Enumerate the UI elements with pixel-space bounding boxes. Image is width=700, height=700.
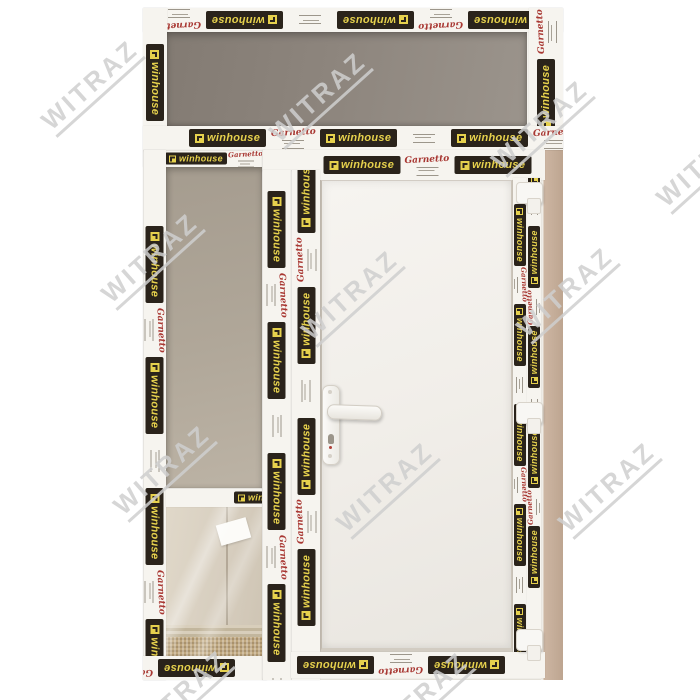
tape-winhouse-block: winhouse <box>337 11 414 29</box>
winhouse-logo-icon <box>272 197 281 206</box>
tape-brand-text: winhouse <box>271 209 283 262</box>
tape-winhouse-block: winhouse <box>297 656 374 674</box>
winhouse-logo-icon <box>272 459 281 468</box>
tape-fineprint-lines <box>430 10 452 19</box>
winhouse-logo-icon <box>490 661 499 670</box>
winhouse-logo-icon <box>329 161 338 170</box>
tape-winhouse-block: winhouse <box>268 584 286 661</box>
tape-fineprint-lines <box>144 581 153 603</box>
tape-gap <box>537 161 545 170</box>
tape-fineprint-lines <box>307 511 316 533</box>
winhouse-logo-icon <box>195 134 204 143</box>
tape-sub-brand-text: Garnetto <box>154 570 166 615</box>
winhouse-logo-icon <box>220 664 229 673</box>
tape-transom-bottom: winhouseGarnettowinhousewinhouseGarnetto… <box>143 126 563 150</box>
winhouse-logo-icon <box>301 218 310 227</box>
winhouse-logo-icon <box>531 277 538 284</box>
tape-gap <box>150 440 159 482</box>
tape-fineprint-lines <box>413 134 435 143</box>
tape-fineprint-lines <box>168 10 190 19</box>
winhouse-logo-icon <box>268 16 277 25</box>
tape-fineprint-lines <box>513 277 518 293</box>
winhouse-logo-icon <box>531 377 538 384</box>
tape-gap <box>517 370 524 400</box>
tape-brand-text: winhouse <box>529 430 539 474</box>
tape-fineprint-lines <box>299 16 321 25</box>
tape-gap: Garnetto <box>144 309 165 351</box>
tape-winhouse-block: winhouse <box>451 129 528 147</box>
tape-gap: Garnetto <box>144 571 165 613</box>
tape-door-bottom: winhouseGarnettowinhousewinhouse <box>291 652 545 678</box>
tape-gap: Garnetto <box>266 274 287 316</box>
winhouse-logo-icon <box>531 577 538 584</box>
tape-sidelight-bottom: winhouseGarnettowinhouse <box>143 656 267 680</box>
witraz-watermark: WITRAZ <box>650 111 700 214</box>
winhouse-logo-icon <box>272 590 281 599</box>
tape-gap <box>272 405 281 447</box>
tape-brand-text: winhouse <box>300 555 312 608</box>
tape-fineprint-lines <box>307 249 316 271</box>
tape-brand-text: winhouse <box>341 159 394 171</box>
tape-fineprint-lines <box>390 655 412 664</box>
tape-brand-text: winhouse <box>515 218 525 262</box>
tape-winhouse-block: winhouse <box>189 129 266 147</box>
tape-gap: Garnetto <box>527 292 541 322</box>
tape-winhouse-block: winhouse <box>268 453 286 530</box>
tape-sub-brand-text: Garnetto <box>519 267 527 302</box>
tape-brand-text: winhouse <box>300 424 312 477</box>
winhouse-logo-icon <box>326 134 335 143</box>
tape-fineprint-lines <box>517 577 524 593</box>
tape-winhouse-block: winhouse <box>514 304 526 366</box>
tape-fineprint-lines <box>266 284 275 306</box>
tape-brand-text: winhouse <box>529 530 539 574</box>
tape-brand-text: winhouse <box>248 493 262 503</box>
tape-brand-text: winhouse <box>149 375 161 428</box>
tape-fineprint-lines <box>416 167 438 176</box>
tape-sub-brand-text: Garnetto <box>143 667 154 679</box>
tape-winhouse-block: winhouse <box>297 170 315 233</box>
tape-winhouse-block: winhouse <box>528 526 540 588</box>
tape-fineprint-lines <box>536 499 541 515</box>
tape-brand-text: winhouse <box>472 159 525 171</box>
tape-winhouse-block: winhouse <box>428 656 505 674</box>
door-handle-lever <box>327 404 382 421</box>
tape-gap: Garnetto <box>513 470 527 500</box>
tape-brand-text: winhouse <box>540 65 552 118</box>
tape-brand-text: winhouse <box>469 132 522 144</box>
winhouse-logo-icon <box>517 508 524 515</box>
door-keyhole <box>328 434 334 444</box>
tape-winhouse-block: winhouse <box>514 504 526 566</box>
tape-gap <box>517 570 524 600</box>
winhouse-logo-icon <box>272 328 281 337</box>
tape-fineprint-lines <box>150 450 159 472</box>
tape-fineprint-lines <box>536 299 541 315</box>
winhouse-logo-icon <box>517 308 524 315</box>
sidelight-frosted-glass <box>166 167 262 488</box>
tape-brand-text: winhouse <box>207 132 260 144</box>
winhouse-logo-icon <box>457 134 466 143</box>
tape-gap: Garnetto <box>513 270 527 300</box>
tape-sub-brand-text: Garnetto <box>404 153 449 165</box>
tape-gap: Garnetto <box>272 128 314 149</box>
tape-winhouse-block: winhouse <box>454 156 531 174</box>
glass-reflection <box>166 507 262 656</box>
product-photo: winhouseGarnettowinhousewinhouseGarnetto… <box>0 0 700 700</box>
tape-winhouse-block: winhouse <box>158 659 235 677</box>
tape-sub-brand-text: Garnetto <box>527 489 535 524</box>
tape-sub-brand-text: Garnetto <box>276 535 288 580</box>
tape-brand-text: winhouse <box>529 330 539 374</box>
tape-winhouse-block: winhouse <box>146 357 164 434</box>
winhouse-logo-icon <box>150 363 159 372</box>
tape-brand-text: winhouse <box>515 318 525 362</box>
tape-brand-text: winhouse <box>271 602 283 655</box>
tape-winhouse-block: winhouse <box>165 153 227 165</box>
tape-mullion-strip-2: winhouseGarnettowinhousewinhouseGarnetto… <box>291 170 320 680</box>
winhouse-logo-icon <box>359 661 368 670</box>
tape-brand-text: winhouse <box>303 659 356 671</box>
tape-winhouse-block: winhouse <box>146 44 164 121</box>
tape-gap: Garnetto <box>536 11 557 53</box>
tape-brand-text: winhouse <box>529 230 539 274</box>
tape-transom-top: winhouseGarnettowinhousewinhouseGarnetto… <box>143 8 563 32</box>
winhouse-logo-icon <box>517 608 524 615</box>
tape-gap: Garnetto <box>231 150 261 167</box>
tape-mullion-strip-1: winhouseGarnettowinhousewinhouseGarnetto… <box>262 170 291 680</box>
tape-gap <box>272 668 281 681</box>
tape-sub-brand-text: Garnetto <box>534 9 546 54</box>
tape-sub-brand-text: Garnetto <box>154 307 166 352</box>
winhouse-logo-icon <box>301 480 310 489</box>
tape-sub-brand-text: Garnetto <box>294 237 306 282</box>
tape-winhouse-block: winhouse <box>323 156 400 174</box>
door-handle-backplate <box>322 385 340 465</box>
tape-gap: Garnetto <box>295 501 316 543</box>
winhouse-logo-icon <box>150 494 159 503</box>
tape-fineprint-lines <box>517 377 524 393</box>
tape-winhouse-block: winhouse <box>514 204 526 266</box>
witraz-watermark: WITRAZ <box>35 34 144 137</box>
tape-brand-text: winhouse <box>179 154 223 164</box>
tape-gap: Garnetto <box>406 155 448 176</box>
tape-brand-text: winhouse <box>271 471 283 524</box>
tape-winhouse-block: winhouse <box>268 191 286 268</box>
tape-brand-text: winhouse <box>300 293 312 346</box>
tape-sub-brand-text: Garnetto <box>270 126 315 138</box>
tape-sub-brand-text: Garnetto <box>533 126 563 138</box>
frame-side-edge <box>541 150 563 680</box>
tape-brand-text: winhouse <box>164 662 217 674</box>
tape-sub-brand-text: Garnetto <box>228 150 263 159</box>
tape-brand-text: winhouse <box>515 518 525 562</box>
winhouse-logo-icon <box>238 494 245 501</box>
tape-brand-text: winhouse <box>515 418 525 462</box>
tape-left-jamb: winhouseGarnettowinhousewinhouseGarnetto… <box>143 150 166 680</box>
door-hinge-bottom <box>516 629 543 651</box>
tape-winhouse-block: winhouse <box>146 226 164 303</box>
tape-winhouse-block: winhouse <box>297 287 315 364</box>
tape-brand-text: winhouse <box>271 340 283 393</box>
tape-winhouse-block: winhouse <box>528 226 540 288</box>
tape-fineprint-lines <box>301 380 310 402</box>
winhouse-logo-icon <box>517 208 524 215</box>
tape-winhouse-block: winhouse <box>297 549 315 626</box>
tape-sub-brand-text: Garnetto <box>294 499 306 544</box>
tape-sub-brand-text: Garnetto <box>519 467 527 502</box>
winhouse-logo-icon <box>399 16 408 25</box>
sidelight-clear-glass <box>166 507 262 656</box>
tape-fineprint-lines <box>272 415 281 437</box>
winhouse-logo-icon <box>460 161 469 170</box>
transom-window-glass <box>166 32 527 126</box>
tape-sub-brand-text: Garnetto <box>418 19 463 31</box>
tape-winhouse-block: winhouse <box>537 59 555 136</box>
tape-fineprint-lines <box>272 678 281 681</box>
tape-winhouse-block: winhouse <box>320 129 397 147</box>
tape-fineprint-lines <box>266 546 275 568</box>
tape-brand-text: winhouse <box>343 14 396 26</box>
tape-sub-brand-text: Garnetto <box>378 664 423 676</box>
tape-fineprint-lines <box>144 319 153 341</box>
tape-gap: Garnetto <box>380 655 422 676</box>
tape-winhouse-block: winhouse <box>528 326 540 388</box>
tape-gap: Garnetto <box>527 492 541 522</box>
tape-brand-text: winhouse <box>300 170 312 215</box>
tape-fineprint-lines <box>282 140 304 149</box>
tape-fineprint-lines <box>544 140 563 149</box>
tape-sub-brand-text: Garnetto <box>276 272 288 317</box>
door-hinge-top <box>516 182 543 204</box>
tape-gap <box>301 370 310 412</box>
tape-gap: Garnetto <box>420 10 462 31</box>
winhouse-logo-icon <box>301 349 310 358</box>
tape-brand-text: winhouse <box>338 132 391 144</box>
tape-brand-text: winhouse <box>149 62 161 115</box>
tape-winhouse-block: winhouse <box>297 418 315 495</box>
door-hinge-middle <box>516 402 543 424</box>
tape-gap: Garnetto <box>295 239 316 281</box>
winhouse-logo-icon <box>150 625 159 634</box>
tape-fineprint-lines <box>238 161 254 168</box>
tape-brand-text: winhouse <box>149 506 161 559</box>
tape-gap <box>403 134 445 143</box>
tape-winhouse-block: winhouse <box>268 322 286 399</box>
witraz-watermark: WITRAZ <box>552 436 661 539</box>
tape-winhouse-block: winhouse <box>206 11 283 29</box>
tape-brand-text: winhouse <box>434 659 487 671</box>
tape-brand-text: winhouse <box>149 244 161 297</box>
tape-sub-brand-text: Garnetto <box>527 290 535 325</box>
winhouse-logo-icon <box>150 232 159 241</box>
tape-winhouse-block: winhouse <box>528 426 540 488</box>
winhouse-logo-icon <box>301 611 310 620</box>
winhouse-logo-icon <box>531 477 538 484</box>
tape-gap: Garnetto <box>534 128 563 149</box>
tape-brand-text: winhouse <box>212 14 265 26</box>
tape-fineprint-lines <box>513 477 518 493</box>
winhouse-logo-icon <box>151 50 160 59</box>
tape-winhouse-block: winhouse <box>234 492 262 504</box>
tape-sidelight-mullion: winhouseGarnettowinhouse <box>166 488 262 507</box>
tape-gap <box>289 16 331 25</box>
tape-fineprint-lines <box>548 21 557 43</box>
tape-gap: Garnetto <box>266 536 287 578</box>
tape-brand-text: winhouse <box>474 14 527 26</box>
tape-gap: Garnetto <box>143 658 152 679</box>
winhouse-logo-icon <box>169 155 176 162</box>
tape-winhouse-block: winhouse <box>146 488 164 565</box>
